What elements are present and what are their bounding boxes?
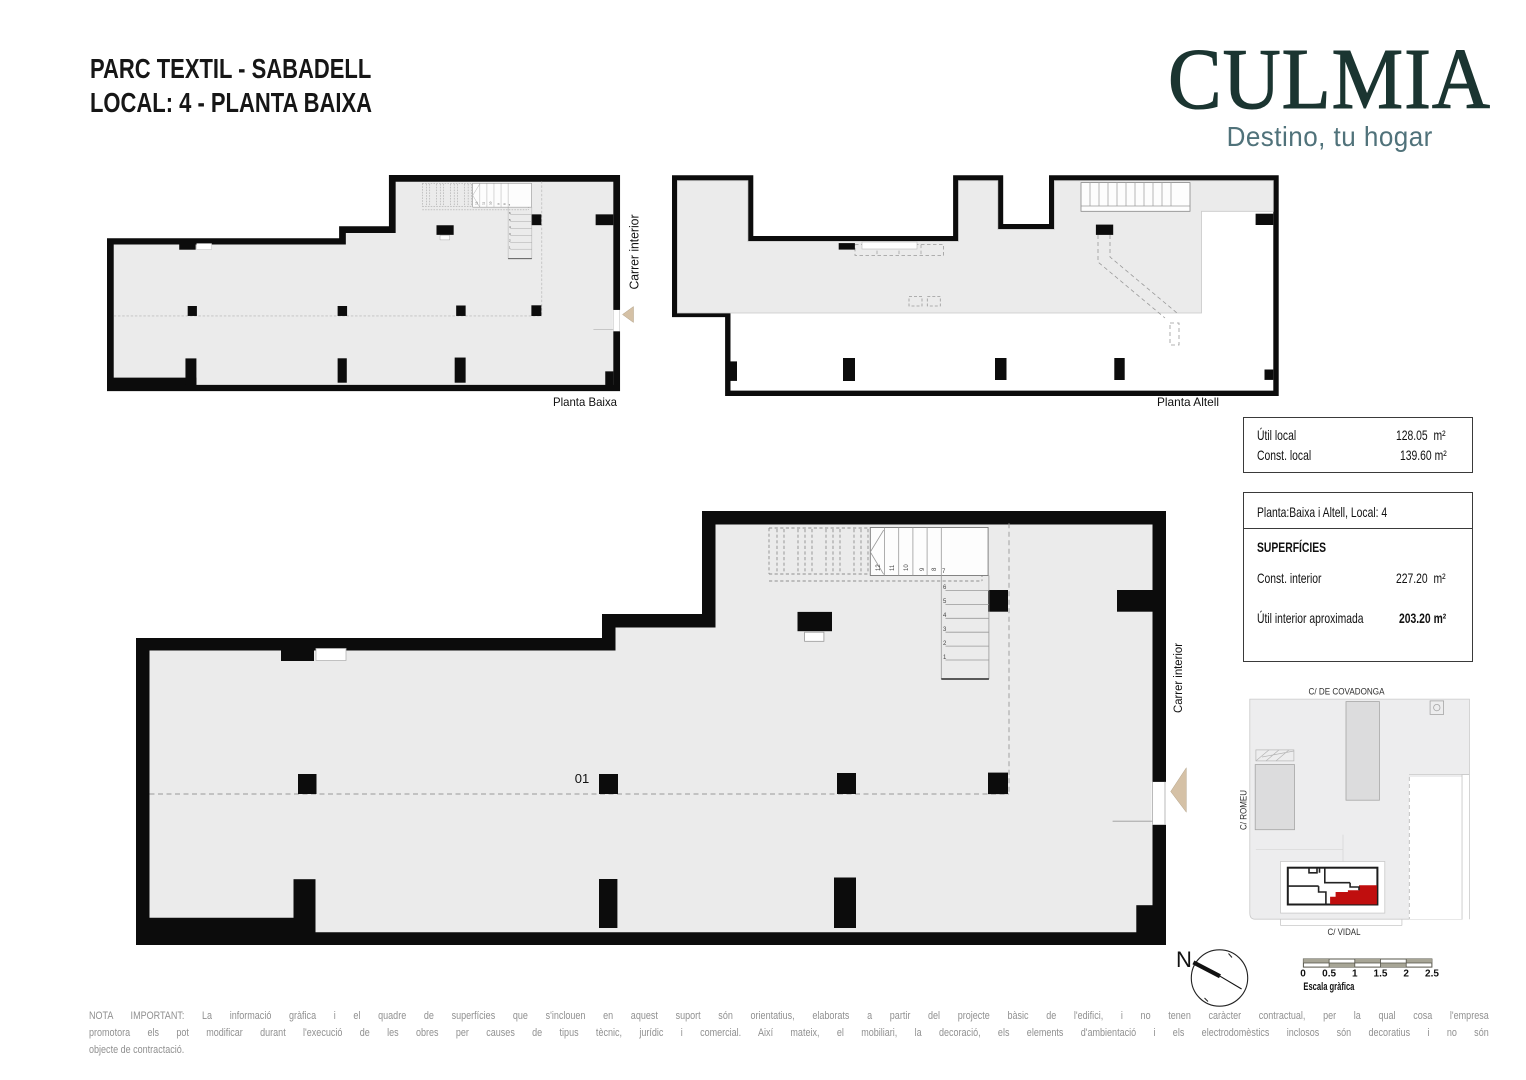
svg-text:1: 1: [1352, 969, 1358, 980]
svg-text:01: 01: [575, 771, 589, 786]
svg-text:Carrer interior: Carrer interior: [628, 215, 642, 290]
svg-text:C/ VIDAL: C/ VIDAL: [1328, 927, 1361, 938]
svg-text:2.5: 2.5: [1425, 969, 1439, 980]
svg-text:0: 0: [1300, 969, 1306, 980]
svg-text:C/ DE COVADONGA: C/ DE COVADONGA: [1309, 687, 1386, 698]
svg-text:C/ ROMEU: C/ ROMEU: [1239, 790, 1250, 830]
svg-text:Carrer interior: Carrer interior: [1173, 643, 1185, 713]
svg-text:N: N: [1176, 947, 1192, 972]
svg-text:Planta Altell: Planta Altell: [1157, 395, 1219, 409]
svg-text:2: 2: [1403, 969, 1409, 980]
svg-text:0.5: 0.5: [1322, 969, 1336, 980]
svg-text:Escala gràfica: Escala gràfica: [1303, 981, 1355, 993]
svg-text:Planta Baixa: Planta Baixa: [553, 395, 617, 409]
svg-text:1.5: 1.5: [1374, 969, 1388, 980]
